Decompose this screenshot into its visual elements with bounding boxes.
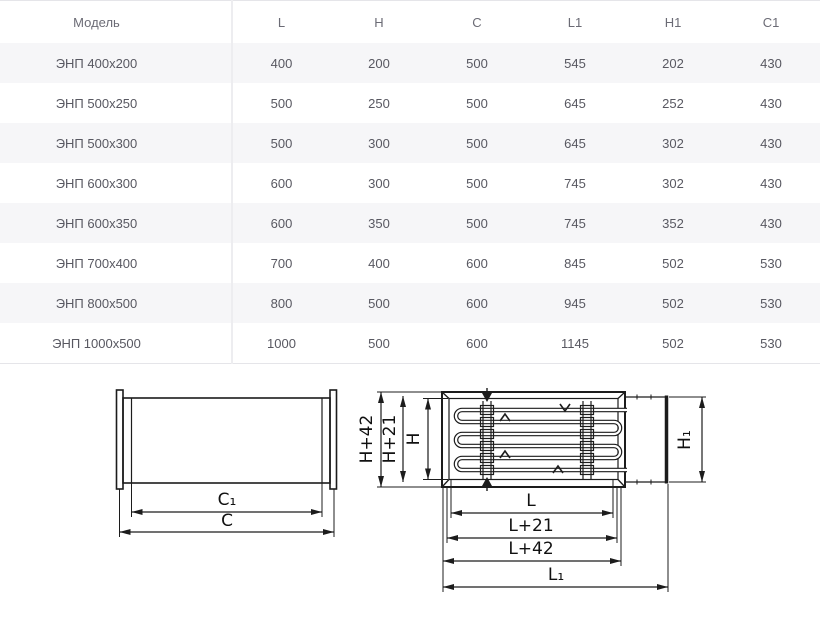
value-cell: 300 — [330, 163, 428, 203]
value-cell: 845 — [526, 243, 624, 283]
model-cell: ЭНП 1000x500 — [0, 323, 232, 364]
dimension-label-l: L — [526, 491, 536, 511]
value-cell: 700 — [232, 243, 330, 283]
dimension-label-l1: L₁ — [548, 565, 564, 585]
value-cell: 600 — [428, 283, 526, 323]
table-row: ЭНП 700x400700400600845502530 — [0, 243, 820, 283]
column-header: H1 — [624, 1, 722, 44]
duct-flange-left — [117, 390, 124, 489]
value-cell: 400 — [330, 243, 428, 283]
height1-dimension: H₁ — [669, 397, 706, 482]
column-header: L — [232, 1, 330, 44]
value-cell: 430 — [722, 203, 820, 243]
value-cell: 500 — [428, 43, 526, 83]
dimension-label-h42: H+42 — [357, 415, 377, 464]
dimension-label-c1: C₁ — [218, 490, 237, 510]
value-cell: 745 — [526, 203, 624, 243]
value-cell: 502 — [624, 323, 722, 364]
dimensions-table: МодельLHCL1H1C1 ЭНП 400x2004002005005452… — [0, 0, 820, 364]
dimension-label-h1: H₁ — [675, 430, 695, 450]
dimension-label-h21: H+21 — [380, 415, 400, 464]
value-cell: 202 — [624, 43, 722, 83]
value-cell: 302 — [624, 123, 722, 163]
dimension-label-c: C — [221, 511, 233, 531]
value-cell: 502 — [624, 283, 722, 323]
value-cell: 400 — [232, 43, 330, 83]
model-cell: ЭНП 600x350 — [0, 203, 232, 243]
value-cell: 500 — [330, 283, 428, 323]
value-cell: 600 — [428, 323, 526, 364]
model-cell: ЭНП 400x200 — [0, 43, 232, 83]
column-header: L1 — [526, 1, 624, 44]
dimension-label-h: H — [404, 433, 424, 446]
column-header: H — [330, 1, 428, 44]
value-cell: 600 — [232, 203, 330, 243]
value-cell: 530 — [722, 283, 820, 323]
terminal-box — [625, 395, 667, 485]
table-row: ЭНП 800x500800500600945502530 — [0, 283, 820, 323]
model-cell: ЭНП 500x300 — [0, 123, 232, 163]
chevron-marks — [500, 404, 570, 473]
value-cell: 1000 — [232, 323, 330, 364]
heating-element-coil — [456, 410, 627, 470]
value-cell: 500 — [428, 83, 526, 123]
table-row: ЭНП 600x350600350500745352430 — [0, 203, 820, 243]
table-row: ЭНП 400x200400200500545202430 — [0, 43, 820, 83]
heater-frame-outer — [442, 392, 625, 487]
model-cell: ЭНП 800x500 — [0, 283, 232, 323]
dimension-label-l21: L+21 — [508, 516, 553, 536]
value-cell: 645 — [526, 123, 624, 163]
value-cell: 350 — [330, 203, 428, 243]
value-cell: 530 — [722, 323, 820, 364]
value-cell: 1145 — [526, 323, 624, 364]
value-cell: 500 — [232, 123, 330, 163]
height-dimensions: H+42 H+21 H — [357, 392, 448, 487]
value-cell: 300 — [330, 123, 428, 163]
product-dimensions-section: МодельLHCL1H1C1 ЭНП 400x2004002005005452… — [0, 0, 820, 622]
value-cell: 352 — [624, 203, 722, 243]
value-cell: 745 — [526, 163, 624, 203]
drawings-svg: C₁ C — [0, 370, 820, 622]
value-cell: 600 — [428, 243, 526, 283]
duct-body — [123, 398, 330, 483]
value-cell: 800 — [232, 283, 330, 323]
value-cell: 500 — [428, 123, 526, 163]
value-cell: 502 — [624, 243, 722, 283]
header-row: МодельLHCL1H1C1 — [0, 1, 820, 44]
value-cell: 600 — [232, 163, 330, 203]
value-cell: 302 — [624, 163, 722, 203]
support-bracket-left — [481, 388, 494, 491]
table-row: ЭНП 600x300600300500745302430 — [0, 163, 820, 203]
column-header: C1 — [722, 1, 820, 44]
model-cell: ЭНП 600x300 — [0, 163, 232, 203]
value-cell: 430 — [722, 163, 820, 203]
value-cell: 250 — [330, 83, 428, 123]
value-cell: 500 — [232, 83, 330, 123]
heater-front-view-drawing: H+42 H+21 H H₁ — [357, 388, 706, 592]
value-cell: 430 — [722, 123, 820, 163]
model-cell: ЭНП 500x250 — [0, 83, 232, 123]
table-header: МодельLHCL1H1C1 — [0, 1, 820, 44]
column-header: C — [428, 1, 526, 44]
table-row: ЭНП 500x300500300500645302430 — [0, 123, 820, 163]
value-cell: 200 — [330, 43, 428, 83]
value-cell: 252 — [624, 83, 722, 123]
length-dimensions: L L+21 L+42 L₁ — [443, 480, 668, 593]
duct-side-view-drawing: C₁ C — [117, 390, 337, 537]
value-cell: 430 — [722, 83, 820, 123]
value-cell: 500 — [330, 323, 428, 364]
value-cell: 430 — [722, 43, 820, 83]
model-cell: ЭНП 700x400 — [0, 243, 232, 283]
value-cell: 530 — [722, 243, 820, 283]
value-cell: 500 — [428, 163, 526, 203]
value-cell: 545 — [526, 43, 624, 83]
dimension-label-l42: L+42 — [508, 539, 553, 559]
support-bracket-right — [581, 401, 594, 479]
technical-drawings: C₁ C — [0, 370, 820, 622]
duct-flange-right — [330, 390, 337, 489]
value-cell: 945 — [526, 283, 624, 323]
table-row: ЭНП 500x250500250500645252430 — [0, 83, 820, 123]
table-row: ЭНП 1000x50010005006001145502530 — [0, 323, 820, 364]
value-cell: 500 — [428, 203, 526, 243]
column-header-model: Модель — [0, 1, 232, 44]
table-body: ЭНП 400x200400200500545202430ЭНП 500x250… — [0, 43, 820, 364]
value-cell: 645 — [526, 83, 624, 123]
